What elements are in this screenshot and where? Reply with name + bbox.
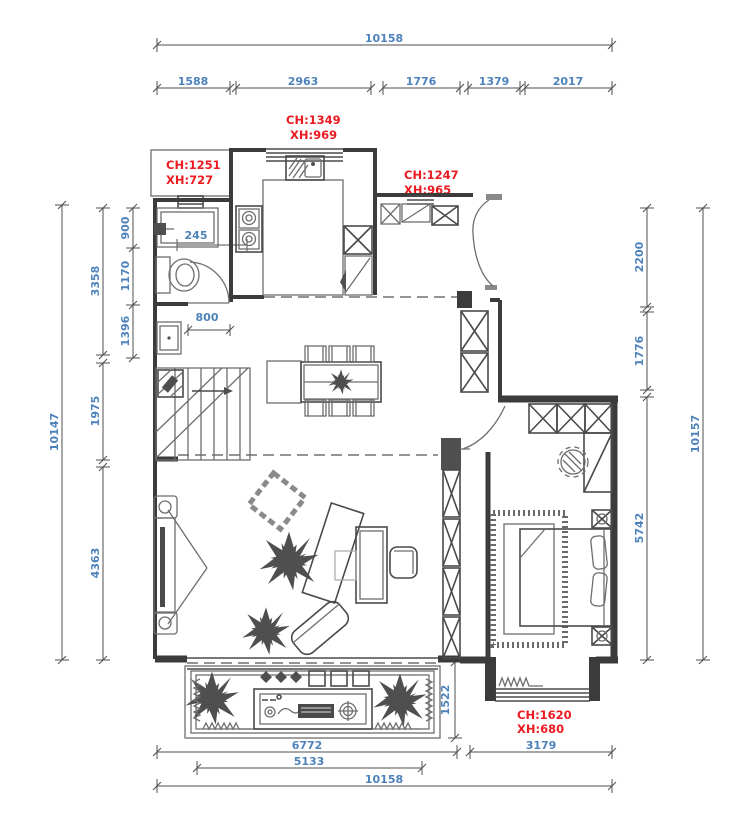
entrance-door-leaf [486, 194, 502, 200]
pillow [590, 572, 607, 606]
annotation-bay-xh: XH:680 [517, 722, 564, 736]
dim-left-mid-2: 1975 [89, 396, 102, 427]
dim-top-overall: 10158 [365, 32, 403, 45]
kitchen-sink [286, 156, 324, 180]
dim-top-seg-4: 1379 [479, 75, 510, 88]
dining-area [267, 346, 381, 416]
sideboard [267, 361, 301, 403]
dim-left-outer: 10147 [48, 413, 61, 451]
lounge-chair [288, 598, 352, 658]
kitchen-window [266, 149, 343, 161]
dim-bottom-1: 6772 [292, 739, 323, 752]
dim-bottom-mid: 5133 [294, 755, 325, 768]
tv-screen [160, 527, 165, 607]
shower-head [154, 223, 166, 235]
annotation-entry-ch: CH:1247 [404, 168, 459, 182]
dim-door-width: 800 [196, 311, 219, 324]
annotation-kitchen-ch: CH:1349 [286, 113, 341, 127]
wall-chunk [441, 438, 461, 470]
balcony-console [254, 689, 372, 729]
dimension-labels: 10158 1588 2963 1776 1379 2017 10147 335… [48, 32, 702, 786]
dim-left-inner-1: 900 [119, 216, 132, 239]
annotation-bay-ch: CH:1620 [517, 708, 572, 722]
bay-curtain-coil [499, 678, 543, 686]
bay-step-left [485, 657, 496, 701]
diamond-rug [249, 473, 305, 529]
office-chair [390, 547, 417, 578]
desk-pad [335, 551, 356, 580]
annotation-bathroom-ch: CH:1251 [166, 158, 221, 172]
living-divider-cabinets [443, 470, 460, 658]
kitchen [236, 156, 372, 295]
desk [302, 503, 363, 603]
annotation-kitchen-xh: XH:969 [290, 128, 337, 142]
dim-left-mid-1: 3358 [89, 266, 102, 297]
bedroom [493, 404, 612, 686]
kitchen-cabinet [340, 226, 372, 295]
dim-right-outer: 10157 [689, 415, 702, 453]
sill-box [309, 671, 325, 686]
living-plant [260, 532, 319, 591]
sill-box [331, 671, 347, 686]
keyboard [298, 704, 334, 718]
dim-bottom-overall: 10158 [365, 773, 403, 786]
sill-box [353, 671, 369, 686]
entrance-door-swing [473, 200, 493, 286]
dim-left-inner-3: 1396 [119, 315, 132, 346]
nightstand [592, 510, 612, 528]
living-plant [242, 607, 290, 655]
dim-bottom-2: 3179 [526, 739, 557, 752]
dim-top-seg-1: 1588 [178, 75, 209, 88]
dim-top-seg-5: 2017 [553, 75, 584, 88]
living-room [154, 470, 460, 658]
pillow [590, 535, 607, 569]
tv-view-angle [168, 510, 207, 624]
sill-plants [260, 671, 302, 687]
annotation-bathroom-xh: XH:727 [166, 173, 213, 187]
floor-plan-drawing: 10158 1588 2963 1776 1379 2017 10147 335… [0, 0, 740, 829]
dim-shower-width: 245 [185, 229, 208, 242]
stairs [156, 368, 250, 460]
dim-left-inner-2: 1170 [119, 260, 132, 291]
bedroom-door-swing [460, 406, 505, 449]
bathroom-door-swing [188, 262, 229, 303]
wardrobe [529, 404, 612, 433]
balcony-plant [185, 671, 238, 724]
entrance-door-leaf [485, 285, 497, 290]
bay-window [495, 689, 590, 701]
wall-chunk [457, 291, 472, 308]
balcony-plant [373, 673, 426, 726]
speaker [154, 496, 177, 518]
dim-right-inner-1: 2200 [633, 241, 646, 272]
dim-top-seg-3: 1776 [406, 75, 437, 88]
bay-step-right [589, 657, 600, 701]
dim-right-inner-3: 5742 [633, 513, 646, 544]
dim-top-seg-2: 2963 [288, 75, 319, 88]
curtain-zigzag [375, 723, 421, 729]
dim-balcony-height: 1522 [439, 685, 452, 716]
balcony [185, 666, 440, 738]
nightstand [592, 627, 612, 645]
curtain-zigzag [203, 723, 251, 729]
floor-plan-page: 10158 1588 2963 1776 1379 2017 10147 335… [0, 0, 740, 829]
dim-left-mid-3: 4363 [89, 548, 102, 579]
entry-sill [407, 196, 434, 204]
kitchen-island [263, 180, 343, 295]
dim-right-inner-2: 1776 [633, 335, 646, 366]
toilet-tank [156, 257, 170, 293]
